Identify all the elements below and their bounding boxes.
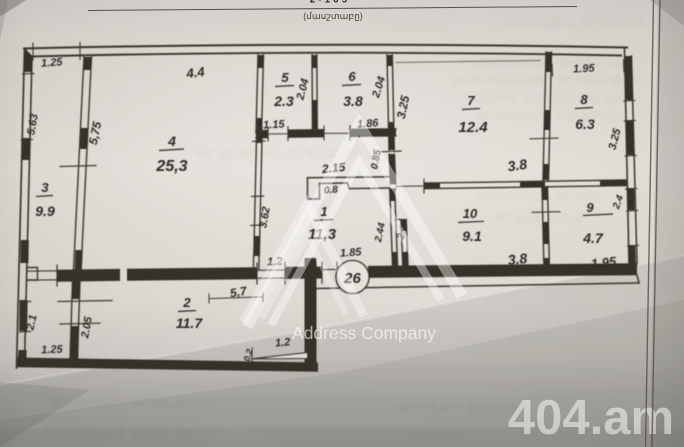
svg-text:4.7: 4.7: [582, 230, 604, 246]
svg-text:ՎԿԱՅԱԿԱՆ: ՎԿԱՅԱԿԱՆ: [390, 23, 450, 34]
svg-text:6: 6: [348, 69, 356, 84]
svg-text:4.4: 4.4: [185, 64, 206, 81]
svg-text:1.25: 1.25: [41, 344, 64, 357]
svg-text:10: 10: [463, 206, 478, 221]
svg-text:6.3: 6.3: [575, 116, 595, 132]
svg-text:4: 4: [167, 133, 176, 149]
svg-text:ՎԿԱՅԱԿԱՆ: ՎԿԱՅԱԿԱՆ: [389, 429, 471, 441]
svg-text:9: 9: [586, 200, 594, 215]
svg-text:25,3: 25,3: [155, 158, 187, 175]
svg-text:3.8: 3.8: [343, 93, 363, 109]
svg-text:11.7: 11.7: [176, 315, 203, 331]
svg-text:ՊԵՏԱԿԱՆ ԳՐԱՆՑՈՒՄ: ՊԵՏԱԿԱՆ ԳՐԱՆՑՈՒՄ: [51, 397, 218, 411]
svg-text:ԳՐԱՆՑՎԱԾ Է ԳՈՒՅՔԸ: ԳՐԱՆՑՎԱԾ Է ԳՈՒՅՔԸ: [45, 427, 206, 439]
svg-text:(մասշտաբը): (մասշտաբը): [303, 11, 363, 21]
svg-text:3.8: 3.8: [507, 156, 529, 175]
svg-text:1.85: 1.85: [340, 246, 363, 260]
svg-text:ԳՈՒՅՔԻ ՀԱՍՑԵ: ԳՈՒՅՔԻ ՀԱՍՑԵ: [399, 401, 521, 415]
svg-text:1.95: 1.95: [573, 62, 596, 75]
svg-text:404.am: 404.am: [508, 391, 674, 445]
svg-text:9.1: 9.1: [462, 228, 482, 244]
svg-text:3.8: 3.8: [507, 250, 528, 268]
svg-text:7: 7: [467, 93, 475, 108]
svg-text:5: 5: [281, 70, 289, 85]
svg-text:1.2: 1.2: [275, 336, 291, 349]
svg-text:12.4: 12.4: [458, 119, 488, 136]
svg-text:1.15: 1.15: [263, 118, 286, 131]
svg-text:9.9: 9.9: [35, 203, 55, 219]
svg-text:1.95: 1.95: [590, 254, 617, 272]
svg-text:2.3: 2.3: [273, 93, 294, 109]
svg-text:8: 8: [580, 92, 588, 107]
svg-text:ԳՐԱՆՑՎԱԾ Է: ԳՐԱՆՑՎԱԾ Է: [497, 213, 584, 225]
svg-text:1.25: 1.25: [41, 56, 64, 70]
svg-text:Address Company: Address Company: [292, 323, 436, 343]
svg-text:3: 3: [41, 180, 49, 195]
svg-text:ՎԿԱՅԱԿԱՆ ՏՐՎԱԾ: ՎԿԱՅԱԿԱՆ ՏՐՎԱԾ: [478, 191, 602, 203]
svg-text:2-109: 2-109: [310, 0, 351, 6]
svg-text:2: 2: [182, 295, 191, 310]
svg-text:ԳՈՒՅՔԱՅԻՆ ԻՐԱՎՈՒՆՔ: ԳՈՒՅՔԱՅԻՆ ԻՐԱՎՈՒՆՔ: [504, 18, 646, 29]
